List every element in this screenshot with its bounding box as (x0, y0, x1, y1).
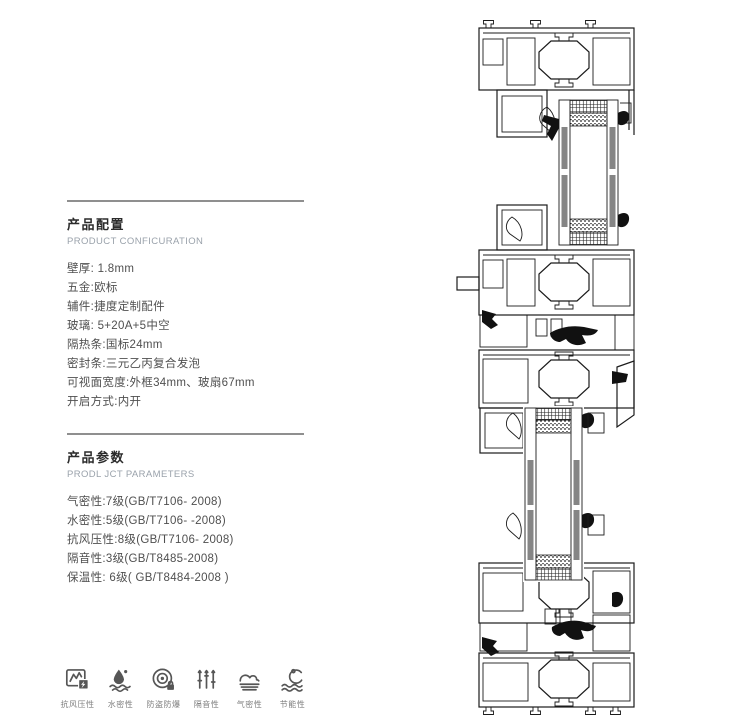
section-divider (67, 200, 304, 202)
feature-label: 节能性 (280, 699, 306, 710)
spec-item: 隔音性:3级(GB/T8485-2008) (67, 550, 304, 569)
section-title: 产品配置 (67, 214, 304, 233)
product-spec-page: 产品配置 PRODUCT CONFICURATION 壁厚: 1.8mm 五金:… (0, 0, 740, 728)
transom-seal-zone (480, 310, 634, 350)
spec-item: 壁厚: 1.8mm (67, 260, 304, 279)
transom-upper-profile (457, 250, 634, 315)
feature-anti-theft: 防盗防爆 (142, 666, 185, 710)
water-tightness-icon (107, 666, 134, 693)
section-divider (67, 433, 304, 435)
spec-item: 辅件:捷度定制配件 (67, 298, 304, 317)
feature-icon-row: 抗风压性 水密性 防盗防爆 (56, 666, 314, 710)
feature-label: 水密性 (108, 699, 134, 710)
feature-water-tightness: 水密性 (99, 666, 142, 710)
feature-label: 抗风压性 (61, 699, 95, 710)
parameters-list: 气密性:7级(GB/T7106- 2008) 水密性:5级(GB/T7106- … (67, 493, 304, 588)
sound-insulation-icon (193, 666, 220, 693)
section-title: 产品参数 (67, 447, 304, 466)
configuration-list: 壁厚: 1.8mm 五金:欧标 辅件:捷度定制配件 玻璃: 5+20A+5中空 … (67, 260, 304, 412)
feature-label: 防盗防爆 (147, 699, 181, 710)
feature-air-tightness: 气密性 (228, 666, 271, 710)
spec-item: 保温性: 6级( GB/T8484-2008 ) (67, 569, 304, 588)
product-parameters-section: 产品参数 PRODL JCT PARAMETERS 气密性:7级(GB/T710… (67, 433, 304, 588)
spec-item: 可视面宽度:外框34mm、玻扇67mm (67, 374, 304, 393)
spec-item: 开启方式:内开 (67, 393, 304, 412)
feature-wind-pressure: 抗风压性 (56, 666, 99, 710)
anti-theft-icon (150, 666, 177, 693)
section-subtitle: PRODUCT CONFICURATION (67, 236, 304, 247)
spec-item: 水密性:5级(GB/T7106- -2008) (67, 512, 304, 531)
product-configuration-section: 产品配置 PRODUCT CONFICURATION 壁厚: 1.8mm 五金:… (67, 200, 304, 412)
feature-energy-saving: 节能性 (271, 666, 314, 710)
window-profile-cross-section-drawing (452, 15, 647, 720)
feature-label: 隔音性 (194, 699, 220, 710)
spec-item: 密封条:三元乙丙复合发泡 (67, 355, 304, 374)
spec-item: 五金:欧标 (67, 279, 304, 298)
energy-saving-icon (279, 666, 306, 693)
feature-sound-insulation: 隔音性 (185, 666, 228, 710)
wind-pressure-icon (64, 666, 91, 693)
sill-bottom-profile (479, 652, 634, 715)
feature-label: 气密性 (237, 699, 263, 710)
spec-item: 隔热条:国标24mm (67, 336, 304, 355)
spec-item: 气密性:7级(GB/T7106- 2008) (67, 493, 304, 512)
section-subtitle: PRODL JCT PARAMETERS (67, 469, 304, 480)
glazing-unit-1 (506, 98, 629, 247)
glazing-unit-2 (506, 406, 604, 582)
air-tightness-icon (236, 666, 263, 693)
spec-item: 玻璃: 5+20A+5中空 (67, 317, 304, 336)
spec-item: 抗风压性:8级(GB/T7106- 2008) (67, 531, 304, 550)
